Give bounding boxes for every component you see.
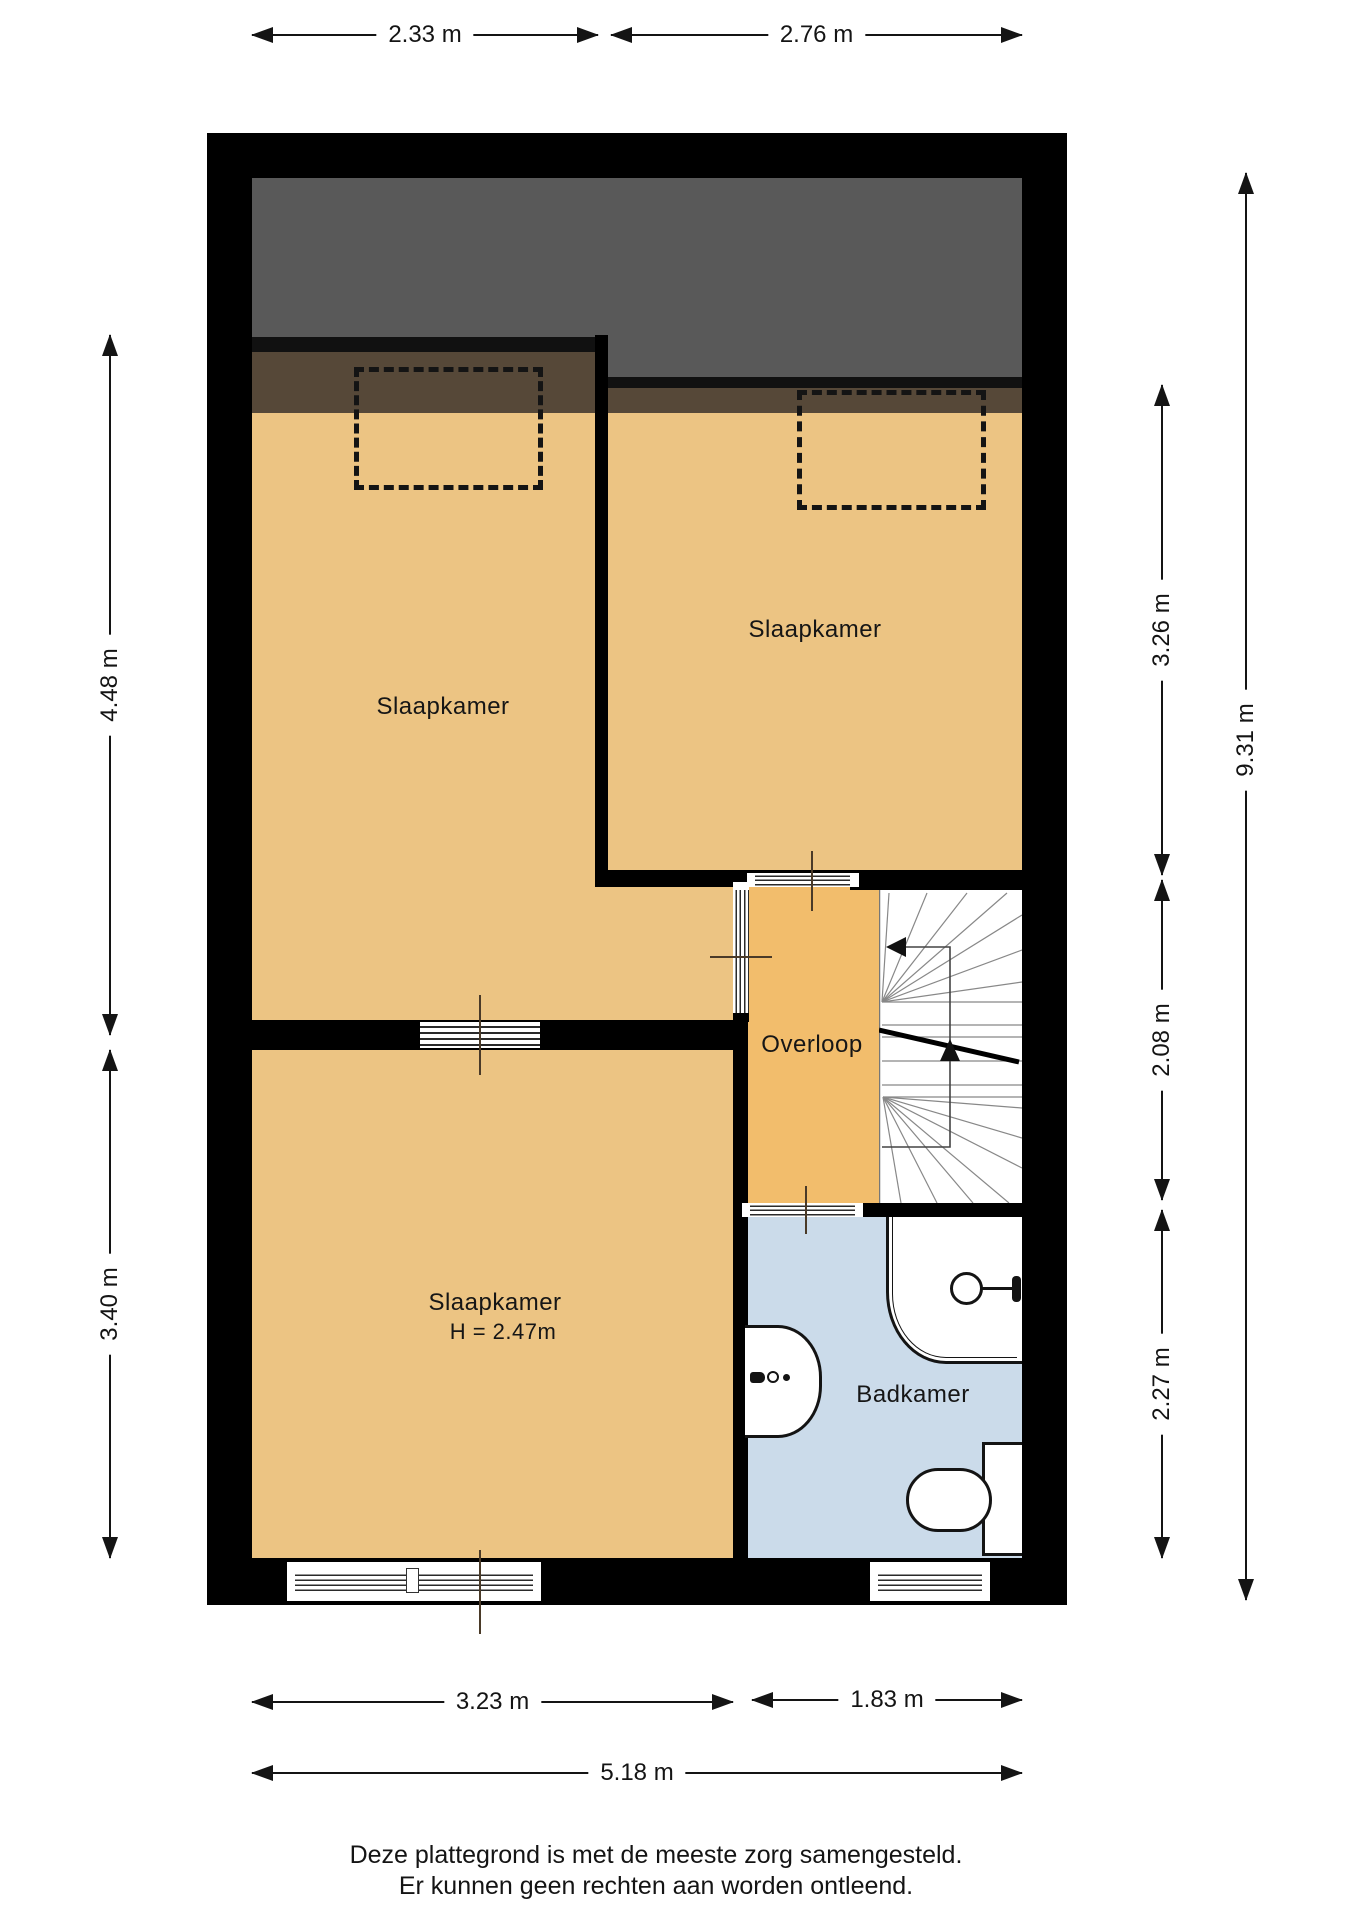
window-bathroom <box>878 1571 982 1591</box>
bedroom-divider-wall <box>595 335 608 887</box>
door-center-mark <box>710 956 772 958</box>
disclaimer-line-2: Er kunnen geen rechten aan worden ontlee… <box>156 1871 1156 1902</box>
door-bedroom-left <box>733 890 749 1013</box>
bathroom-top-wall <box>855 1203 1022 1217</box>
dormer-outline-right <box>797 390 986 510</box>
landing-top-wall-right <box>850 870 1022 890</box>
dim-label: 3.23 m <box>444 1688 541 1716</box>
door-jamb <box>850 873 859 887</box>
door-center-mark <box>805 1186 807 1234</box>
disclaimer-line-1: Deze plattegrond is met de meeste zorg s… <box>156 1840 1156 1871</box>
shower-mixer-icon <box>950 1272 983 1305</box>
window-center-mark <box>479 995 481 1075</box>
bathroom-left-wall <box>733 1050 748 1558</box>
toilet-bowl-icon <box>906 1468 992 1532</box>
door-jamb <box>733 882 749 890</box>
door-jamb <box>855 1203 863 1217</box>
door-bedroom-top-right <box>755 873 850 887</box>
dim-label: 5.18 m <box>588 1759 685 1787</box>
room-label-landing: Overloop <box>761 1031 862 1059</box>
room-label-bedroom-top-right: Slaapkamer <box>748 616 881 644</box>
dim-label: 1.83 m <box>838 1686 935 1714</box>
door-jamb <box>742 1203 750 1217</box>
dim-label: 2.76 m <box>768 21 865 49</box>
dim-label: 2.27 m <box>1148 1333 1176 1434</box>
dim-label: 3.26 m <box>1148 579 1176 680</box>
staircase-symbol <box>879 890 1022 1203</box>
window-center-mark <box>479 1550 481 1634</box>
bedroom-left-nook-floor <box>595 887 733 1020</box>
door-bathroom <box>750 1203 855 1217</box>
dim-label: 4.48 m <box>96 634 124 735</box>
room-label-bedroom-left: Slaapkamer <box>376 693 509 721</box>
tap-icon-ring <box>767 1371 779 1383</box>
room-label-bedroom-bottom: Slaapkamer <box>428 1289 561 1317</box>
window-mid-post <box>406 1568 419 1593</box>
dim-label: 2.33 m <box>376 21 473 49</box>
dim-label: 3.40 m <box>96 1253 124 1354</box>
disclaimer: Deze plattegrond is met de meeste zorg s… <box>156 1840 1156 1902</box>
dim-label: 9.31 m <box>1232 689 1260 790</box>
dim-label: 2.08 m <box>1148 989 1176 1090</box>
tap-icon-dot <box>783 1374 790 1381</box>
tap-icon <box>750 1372 765 1383</box>
floorplan-canvas: Slaapkamer Slaapkamer Slaapkamer H = 2.4… <box>0 0 1358 1920</box>
landing-top-wall-left <box>595 870 755 887</box>
shower-mixer-line <box>980 1287 1016 1290</box>
room-height-note: H = 2.47m <box>450 1319 557 1345</box>
dormer-outline-left <box>354 367 543 490</box>
shower-wall-bracket <box>1012 1276 1021 1302</box>
room-label-bathroom: Badkamer <box>856 1381 969 1409</box>
roof-edge-right <box>595 377 1022 388</box>
door-center-mark <box>811 851 813 911</box>
roof-edge-left <box>252 337 608 352</box>
